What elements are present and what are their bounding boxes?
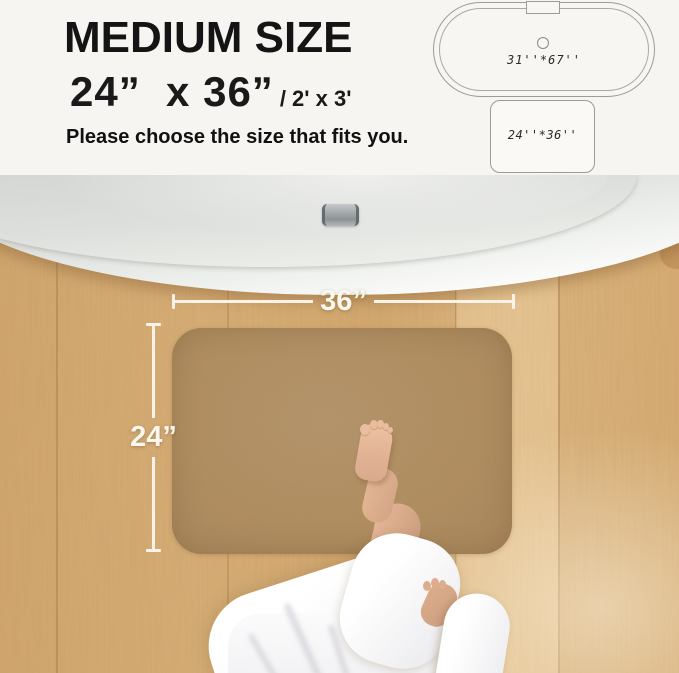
dimension-end-cap <box>146 549 161 552</box>
dimension-end-cap <box>512 294 515 309</box>
page-title: MEDIUM SIZE <box>64 13 352 63</box>
product-size-image: MEDIUM SIZE 24” x 36” / 2' x 3' Please c… <box>0 0 679 673</box>
drain-icon <box>537 37 549 49</box>
dimension-line <box>374 300 512 303</box>
bath-mat <box>172 328 512 554</box>
mat-size-label: 24''*36'' <box>491 128 594 142</box>
dimension-line <box>152 326 155 418</box>
overflow-drain-plate <box>322 204 359 226</box>
size-line: 24” x 36” / 2' x 3' <box>70 68 351 116</box>
finger <box>431 578 439 588</box>
width-label: 36” <box>313 285 374 318</box>
toe <box>360 424 370 435</box>
bathtub-size-label: 31''*67'' <box>434 53 654 67</box>
dimension-line <box>152 457 155 549</box>
finger <box>423 581 431 591</box>
faucet-notch-icon <box>526 1 560 14</box>
height-dimension: 24” <box>146 323 161 552</box>
bathtub-diagram-inner-outline <box>439 8 649 91</box>
height-label: 24” <box>130 421 177 454</box>
bathroom-photo: 36” 24” <box>0 175 679 673</box>
subtitle-text: Please choose the size that fits you. <box>66 126 408 149</box>
toe <box>388 427 393 433</box>
header-panel: MEDIUM SIZE 24” x 36” / 2' x 3' Please c… <box>0 0 679 175</box>
bathtub-top-view-diagram: 31''*67'' <box>433 2 655 97</box>
dimension-line <box>175 300 313 303</box>
mat-texture <box>172 328 512 554</box>
size-primary-text: 24” x 36” <box>70 68 274 116</box>
mat-outline-diagram: 24''*36'' <box>490 100 595 173</box>
width-dimension: 36” <box>172 294 515 309</box>
finger <box>439 580 446 589</box>
size-secondary-text: / 2' x 3' <box>280 86 352 112</box>
